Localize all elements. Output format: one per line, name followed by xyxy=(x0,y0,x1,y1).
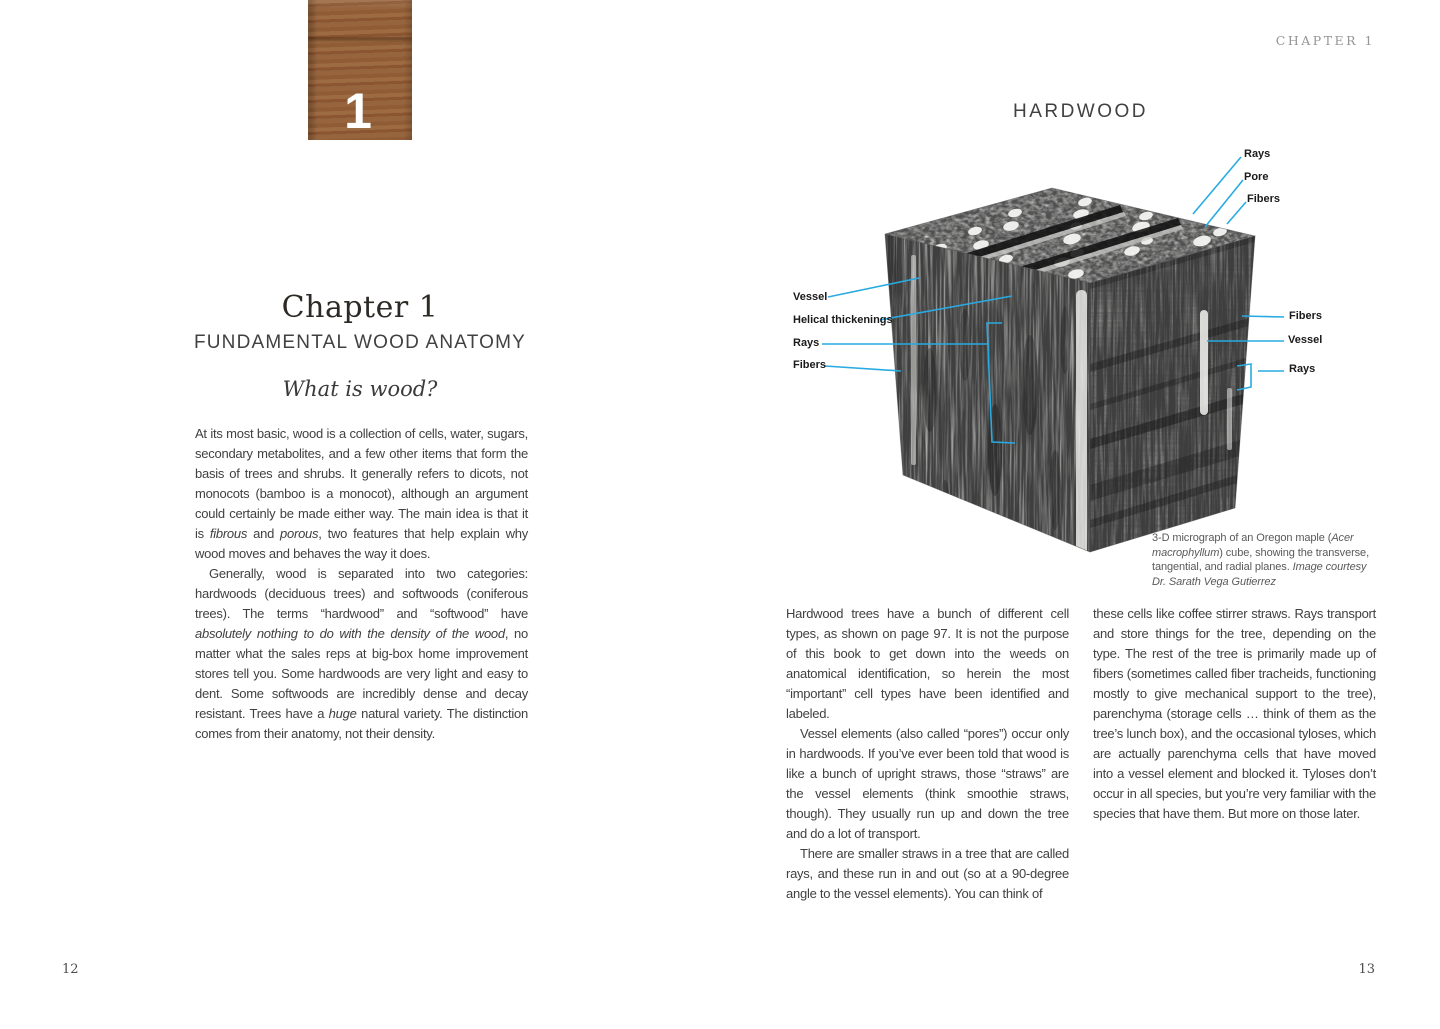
paragraph: Hardwood trees have a bunch of different… xyxy=(786,604,1069,724)
page-number-left: 12 xyxy=(62,962,79,977)
leader-rays-top xyxy=(1193,157,1241,214)
chapter-tab-number: 1 xyxy=(308,86,408,136)
text-segment: 3-D micrograph of an Oregon maple ( xyxy=(1152,532,1331,544)
paragraph: At its most basic, wood is a collection … xyxy=(195,424,528,564)
text-segment: porous xyxy=(280,526,318,541)
paragraph: Vessel elements (also called “pores”) oc… xyxy=(786,724,1069,844)
figure-label-fibers-left: Fibers xyxy=(793,359,826,371)
paragraph: these cells like coffee stirrer straws. … xyxy=(1093,604,1376,824)
figure-label-rays-left: Rays xyxy=(793,337,819,349)
leader-pore xyxy=(1205,180,1243,227)
chapter-question: What is wood? xyxy=(160,377,560,401)
leader-fibers-right xyxy=(1242,316,1284,317)
book-spread: 1 Chapter 1 FUNDAMENTAL WOOD ANATOMY Wha… xyxy=(0,0,1440,1029)
white-channel xyxy=(1076,290,1087,555)
text-segment: Vessel elements (also called “pores”) oc… xyxy=(786,726,1069,841)
text-segment: Generally, wood is separated into two ca… xyxy=(195,566,528,621)
figure-caption: 3-D micrograph of an Oregon maple (Acer … xyxy=(1152,531,1382,589)
text-segment: and xyxy=(247,526,280,541)
paragraph: There are smaller straws in a tree that … xyxy=(786,844,1069,904)
figure-label-rays-top: Rays xyxy=(1244,148,1270,160)
leader-fibers-left xyxy=(825,366,901,371)
figure-label-fibers-top: Fibers xyxy=(1247,193,1280,205)
right-page-column-1: Hardwood trees have a bunch of different… xyxy=(786,604,1069,904)
text-segment: At its most basic, wood is a collection … xyxy=(195,426,528,541)
text-segment: these cells like coffee stirrer straws. … xyxy=(1093,606,1376,821)
figure-label-vessel-left: Vessel xyxy=(793,291,827,303)
paragraph: Generally, wood is separated into two ca… xyxy=(195,564,528,744)
chapter-subtitle: FUNDAMENTAL WOOD ANATOMY xyxy=(160,332,560,354)
figure-label-helical-thickenings: Helical thickenings xyxy=(793,314,893,326)
chapter-tab: 1 xyxy=(308,0,412,140)
text-segment: There are smaller straws in a tree that … xyxy=(786,846,1069,901)
figure-label-pore: Pore xyxy=(1244,171,1268,183)
chapter-title: Chapter 1 xyxy=(160,290,560,325)
leader-fibers-top xyxy=(1227,202,1246,224)
section-heading: HARDWOOD xyxy=(786,101,1375,123)
right-page-column-2: these cells like coffee stirrer straws. … xyxy=(1093,604,1376,824)
chapter-heading-block: Chapter 1 FUNDAMENTAL WOOD ANATOMY What … xyxy=(160,290,560,401)
cube-right-face xyxy=(1085,230,1260,560)
text-segment: Hardwood trees have a bunch of different… xyxy=(786,606,1069,721)
text-segment: huge xyxy=(329,706,357,721)
figure-label-fibers-right: Fibers xyxy=(1289,310,1322,322)
vessel-streak-right xyxy=(1200,310,1208,415)
text-segment: absolutely nothing to do with the densit… xyxy=(195,626,505,641)
figure-label-rays-right: Rays xyxy=(1289,363,1315,375)
text-segment: fibrous xyxy=(210,526,247,541)
figure-label-vessel-right: Vessel xyxy=(1288,334,1322,346)
left-page-body: At its most basic, wood is a collection … xyxy=(195,424,528,744)
page-number-right: 13 xyxy=(1340,962,1375,977)
running-head: CHAPTER 1 xyxy=(1000,33,1375,48)
